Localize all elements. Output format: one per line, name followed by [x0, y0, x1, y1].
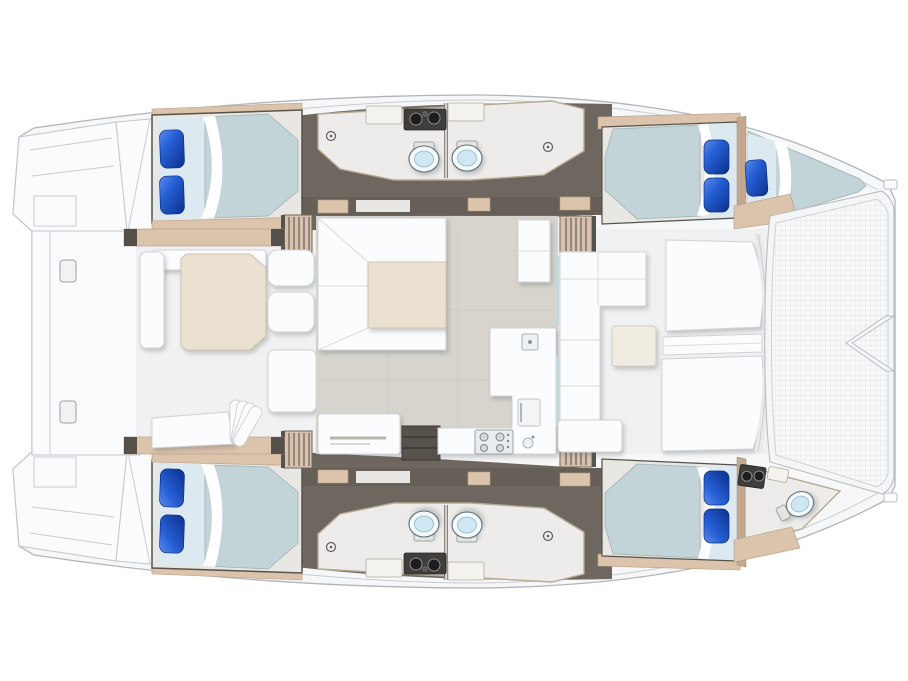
- trampoline-net: [772, 199, 889, 487]
- trampoline: [765, 180, 897, 502]
- open-shelf: [402, 426, 440, 460]
- bow-fitting: [884, 493, 897, 502]
- sun-pad-starboard: [662, 356, 763, 451]
- galley-sink-square: [522, 334, 538, 350]
- traveler-bar: [124, 229, 284, 246]
- chart-table: [318, 414, 400, 454]
- pillow: [745, 159, 768, 196]
- helm-seat: [268, 350, 316, 412]
- cockpit-side-bench: [140, 252, 164, 348]
- side-table: [612, 326, 656, 366]
- lounge-chair: [268, 250, 314, 286]
- cleat-icon: [60, 401, 76, 423]
- sun-pad-port: [666, 240, 763, 331]
- cleat-icon: [60, 260, 76, 282]
- traveler-end: [124, 229, 137, 246]
- vanity-sink: [738, 464, 767, 488]
- salon-table: [368, 262, 446, 328]
- window-strip: [556, 356, 559, 426]
- stove-icon: [475, 430, 513, 454]
- deck-plan-page: [0, 0, 908, 681]
- traveler-end: [271, 437, 284, 454]
- aft-platform: [32, 231, 140, 455]
- lounge-chair: [268, 292, 314, 332]
- cockpit-table: [181, 254, 266, 350]
- window-strip: [556, 256, 559, 326]
- bow-fitting: [884, 180, 897, 189]
- cockpit-bench-aft: [152, 412, 234, 448]
- catamaran-deck-plan: [0, 0, 908, 681]
- traveler-end: [271, 229, 284, 246]
- fwd-bench-aft: [558, 420, 622, 452]
- fridge-door: [518, 399, 540, 426]
- traveler-end: [124, 437, 137, 454]
